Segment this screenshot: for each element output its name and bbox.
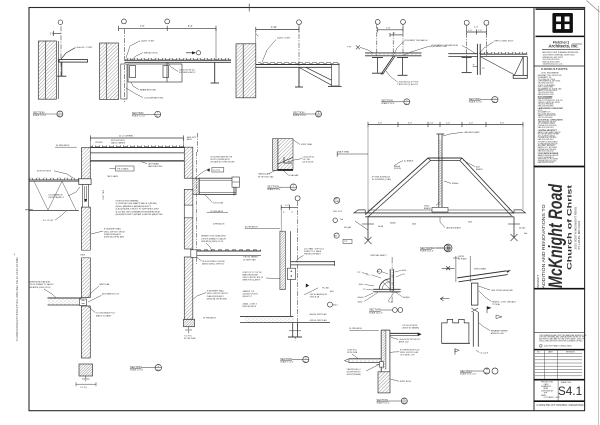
svg-text:EL PER PLAN: EL PER PLAN [184, 337, 196, 340]
svg-text:(2)3/4" CONT: (2)3/4" CONT [141, 41, 155, 43]
svg-text:TIE 2 GARS: TIE 2 GARS [117, 168, 129, 171]
svg-text:4 ROOF (DRAW) TO VALLEY: 4 ROOF (DRAW) TO VALLEY [29, 283, 55, 286]
svg-text:(DRS) GA. DIP AT (MS): (DRS) GA. DIP AT (MS) [104, 236, 124, 239]
svg-text:9'-0": 9'-0" [500, 122, 504, 124]
svg-text:(2) R BEND CHD ANCHOR: (2) R BEND CHD ANCHOR [431, 44, 458, 47]
svg-text:1/2: 1/2 [363, 289, 366, 291]
svg-text:21'-0" (VERIF): 21'-0" (VERIF) [119, 136, 133, 138]
svg-text:KH QA4: KH QA4 [344, 226, 351, 229]
svg-text:S4.1: S4.1 [156, 116, 160, 118]
svg-text:LATE AUXILIARY: LATE AUXILIARY [464, 131, 480, 134]
svg-text:1xTDL P(B): 1xTDL P(B) [213, 202, 223, 204]
svg-text:L4x4x1/4 - CONT: L4x4x1/4 - CONT [76, 47, 94, 49]
svg-text:1) LINTEL(B)T (DH) SHA(FT) WAL: 1) LINTEL(B)T (DH) SHA(FT) WALLS 4 (RETA… [116, 202, 158, 205]
svg-text:EXIST SLAB: EXIST SLAB [301, 143, 313, 146]
svg-text:W/ LIFT DRL OAD: W/ LIFT DRL OAD [258, 175, 274, 178]
svg-text:JOIST TIES: JOIST TIES [103, 189, 105, 200]
svg-text:SCALE 1"=1'-0": SCALE 1"=1'-0" [33, 114, 47, 117]
svg-text:TYPICAL: TYPICAL [492, 303, 500, 306]
svg-text:STEEL BEAM: STEEL BEAM [474, 268, 486, 271]
svg-text:CROWN: CROWN [95, 142, 103, 144]
svg-text:SCALE 1"=1'-0": SCALE 1"=1'-0" [293, 114, 307, 117]
svg-text:SCALE 1"=1'-0": SCALE 1"=1'-0" [469, 101, 483, 104]
svg-text:40d: 40d [524, 233, 527, 235]
svg-text:ROOF DRA: ROOF DRA [347, 351, 358, 354]
svg-text:4004A#: 4004A# [452, 182, 459, 185]
svg-text:CONSULTANTS: CONSULTANTS [541, 67, 568, 71]
svg-text:BRACE: BRACE [476, 168, 483, 171]
svg-text:DATE: DATE [548, 351, 553, 354]
svg-text:SCALE 22=1'-0": SCALE 22=1'-0" [369, 311, 383, 314]
svg-text:S4.1: S4.1 [558, 384, 582, 398]
svg-text:DRILL 4 EPOXY GROUT: DRILL 4 EPOXY GROUT [207, 293, 229, 295]
svg-text:FAX (314) 259-2601: FAX (314) 259-2601 [538, 138, 554, 141]
svg-text:(2) R BENT CHD ANCH: (2) R BENT CHD ANCH [404, 39, 428, 42]
svg-text:3'-10": 3'-10" [271, 27, 277, 29]
svg-text:SPECIAL SEAT C: SPECIAL SEAT C [370, 254, 387, 257]
svg-text:SCALE 3"=1'-0": SCALE 3"=1'-0" [377, 402, 391, 405]
svg-text:PLAN P(DRS) APCI: PLAN P(DRS) APCI [207, 295, 224, 298]
svg-text:SCALE 1"=1'-0": SCALE 1"=1'-0" [267, 188, 281, 191]
svg-text:400d EL PER PLAN: 400d EL PER PLAN [310, 313, 327, 316]
svg-text:1'-8": 1'-8" [386, 28, 391, 30]
svg-text:@ 8" EXIST. O/H: @ 8" EXIST. O/H [400, 355, 415, 357]
svg-text:CONSTRUCTION/BID DRAWINGS: CONSTRUCTION/BID DRAWINGS [536, 403, 585, 407]
svg-text:3'-9": 3'-9" [378, 122, 382, 124]
svg-text:PRE BELOW BRKT: PRE BELOW BRKT [304, 254, 322, 256]
svg-text:S4.1: S4.1 [317, 116, 321, 118]
svg-text:GROUT(FLASH): GROUT(FLASH) [347, 373, 362, 376]
svg-text:S4.1: S4.1 [405, 103, 409, 105]
svg-text:FAX (314) 993-8855: FAX (314) 993-8855 [538, 104, 554, 107]
svg-text:8: 8 [333, 220, 334, 222]
svg-text:1'-4": 1'-4" [285, 205, 289, 207]
svg-text:8": 8" [394, 33, 396, 35]
svg-text:TYP: TYP [347, 46, 352, 48]
svg-text:16 TYP: 16 TYP [213, 170, 221, 172]
svg-text:W/ PLATE: W/ PLATE [458, 258, 467, 261]
svg-text:LINTEL NOTES GENERAL:: LINTEL NOTES GENERAL: [116, 200, 140, 203]
svg-text:S4.1: S4.1 [403, 403, 407, 405]
svg-text:S4.1: S4.1 [493, 101, 497, 103]
svg-text:BEAM BEYOND: BEAM BEYOND [140, 89, 156, 92]
svg-text:(BB)TY DL RAINY: (BB)TY DL RAINY [96, 314, 112, 317]
svg-text:1'-0": 1'-0" [478, 30, 482, 32]
svg-text:4004: 4004 [468, 221, 472, 223]
svg-text:M.B. 12'-6": M.B. 12'-6" [333, 211, 343, 213]
svg-text:WER SLAB: WER SLAB [100, 283, 111, 286]
svg-text:FACE: FACE [81, 253, 86, 256]
svg-text:(FIXED): (FIXED) [394, 168, 401, 170]
svg-text:E.O. 2F JST: E.O. 2F JST [43, 220, 54, 222]
svg-text:1'-6" SQ: 1'-6" SQ [80, 387, 87, 389]
svg-text:METAL DECK: METAL DECK [144, 51, 158, 54]
svg-text:BY SUSPEND (LOAD): BY SUSPEND (LOAD) [372, 178, 391, 181]
svg-text:(B)VERT(DH) SLAB (DH): (B)VERT(DH) SLAB (DH) [29, 280, 51, 283]
svg-text:SHIM FOR CLARITY: SHIM FOR CLARITY [243, 279, 261, 282]
svg-text:1/2 CH(ON)DA 4 P-DT: 1/2 CH(ON)DA 4 P-DT [96, 312, 116, 315]
svg-text:Church of Christ: Church of Christ [567, 184, 574, 270]
svg-text:cor asp R: cor asp R [480, 351, 489, 354]
svg-text:(L) BRACE: (L) BRACE [404, 159, 414, 162]
svg-text:(B)GG PLT: (B)GG PLT [243, 296, 253, 298]
svg-text:COLUMN BEYOND: COLUMN BEYOND [144, 97, 164, 99]
svg-text:(2)LS 3/4 DB: (2)LS 3/4 DB [303, 162, 315, 164]
svg-text:EL PER ARCH: EL PER ARCH [203, 316, 216, 319]
svg-text:PLAN P(DRS) APCI: PLAN P(DRS) APCI [104, 233, 121, 236]
svg-text:SCALE 1"=1'-0": SCALE 1"=1'-0" [280, 361, 294, 364]
svg-text:S4.1: S4.1 [58, 116, 62, 118]
svg-text:2'-0": 2'-0" [474, 26, 478, 28]
svg-text:BRACE: BRACE [424, 207, 431, 210]
svg-text:4004#: 4004# [402, 270, 407, 272]
svg-text:4004: 4004 [412, 223, 416, 225]
svg-text:4004#: 4004# [358, 301, 363, 303]
svg-text:PER ARCH (DWG) OF 16: PER ARCH (DWG) OF 16 [201, 240, 223, 243]
svg-text:W/ LARR SLOTTED HOLES: W/ LARR SLOTTED HOLES [211, 161, 236, 164]
svg-text:40d 2: 40d 2 [333, 304, 338, 306]
svg-text:Architects, Inc.: Architects, Inc. [548, 44, 578, 49]
svg-text:EXIST BLDG: EXIST BLDG [400, 381, 412, 383]
svg-text:Bld L: Bld L [330, 291, 334, 293]
svg-text:c: c [540, 346, 541, 348]
svg-text:EL PER ARCH: EL PER ARCH [211, 210, 224, 213]
svg-text:5'-4": 5'-4" [188, 26, 193, 28]
svg-text:REVISION: REVISION [566, 352, 575, 354]
svg-text:HALF SPAN: HALF SPAN [338, 150, 350, 153]
svg-text:4 ROOF (DRAW) TO VALLEY: 4 ROOF (DRAW) TO VALLEY [201, 237, 227, 240]
svg-text:40 QA#: 40 QA# [519, 226, 526, 229]
svg-text:SCALE 1"=1'-0": SCALE 1"=1'-0" [381, 102, 395, 105]
svg-text:8": 8" [473, 64, 475, 66]
svg-text:ANCHOR ONLY: ANCHOR ONLY [491, 332, 505, 335]
svg-text:EL SEE PLAN: EL SEE PLAN [244, 258, 257, 261]
svg-text:EL PER ARCH: EL PER ARCH [245, 225, 258, 228]
svg-text:(2)DRFT ADAP LP: (2)DRFT ADAP LP [48, 196, 64, 199]
svg-text:400d+: 400d+ [359, 284, 364, 286]
svg-text:4004A: 4004A [390, 221, 396, 224]
svg-text:McKnight Road: McKnight Road [545, 183, 567, 288]
svg-text:EL PER ARCH: EL PER ARCH [56, 144, 70, 147]
svg-text:3) GLV (B)T LINTL (DH)B(AR) FR: 3) GLV (B)T LINTL (DH)B(AR) FROM (B)SHEL… [116, 210, 161, 213]
svg-text:10": 10" [482, 68, 485, 70]
svg-text:A PER ADLR: A PER ADLR [213, 223, 225, 226]
svg-text:info@fletcherarchs.com: info@fletcherarchs.com [543, 63, 563, 66]
svg-text:40GA: 40GA [378, 225, 384, 228]
svg-text:2'-0": 2'-0" [469, 122, 473, 124]
svg-text:2'-0": 2'-0" [430, 122, 434, 124]
svg-text:ANGLE (DRILL 4 EPOXY): ANGLE (DRILL 4 EPOXY) [202, 262, 224, 265]
svg-text:S4.1: S4.1 [157, 369, 161, 371]
svg-text:SCALE 1"=1'-0": SCALE 1"=1'-0" [130, 369, 144, 372]
svg-text:(B) R NARY(P) LOG: (B) R NARY(P) LOG [102, 293, 120, 296]
svg-text:DISCLOSED WITHOUT WRITTEN CONS: DISCLOSED WITHOUT WRITTEN CONSENT OF F.A… [539, 340, 583, 343]
svg-text:FAX (636) 327-0056: FAX (636) 327-0056 [538, 161, 554, 164]
svg-text:FAX (314) 736-0012: FAX (314) 736-0012 [538, 150, 554, 153]
svg-text:DAD B BEYOND: DAD B BEYOND [148, 165, 163, 168]
svg-text:20d: 20d [340, 219, 343, 221]
svg-text:SCALE 1"=1'-0": SCALE 1"=1'-0" [132, 114, 146, 117]
svg-text:PER ARCH (DWG) OF 16: PER ARCH (DWG) OF 16 [29, 286, 51, 289]
svg-text:THE 2 GARS: THE 2 GARS [107, 175, 119, 178]
svg-text:2'-0": 2'-0" [446, 122, 450, 124]
svg-text:GRD EL PER PLAN: GRD EL PER PLAN [310, 319, 327, 322]
svg-text:NO.: NO. [537, 352, 541, 354]
svg-text:EL PER ARCH: EL PER ARCH [349, 327, 362, 330]
svg-text:ST. LOUIS, MO 63124: ST. LOUIS, MO 63124 [577, 220, 581, 249]
svg-text:4004x3: 4004x3 [358, 297, 364, 299]
svg-text:1'-0": 1'-0" [468, 30, 472, 32]
svg-text:1'-0": 1'-0" [50, 34, 55, 36]
svg-text:IF (NO)SHIFT WALL: IF (NO)SHIFT WALL [207, 289, 224, 292]
svg-text:IF (NO)SHIFT WALL: IF (NO)SHIFT WALL [104, 228, 121, 231]
svg-text:S:\2002\MCKNIGHT\STRUCT\S41.DW: S:\2002\MCKNIGHT\STRUCT\S41.DWG Wed Oct … [16, 257, 19, 341]
svg-text:Pn L: Pn L [367, 274, 371, 276]
svg-text:4 BOLR 2A: 4 BOLR 2A [310, 295, 320, 298]
svg-text:7'-0": 7'-0" [140, 26, 145, 28]
svg-text:ARCH: ARCH [187, 138, 193, 141]
svg-text:3/4" ANCH BOLT: 3/4" ANCH BOLT [179, 71, 196, 74]
svg-text:(EXIST EL VARIES): (EXIST EL VARIES) [402, 327, 419, 330]
svg-text:3'-9": 3'-9" [408, 122, 412, 124]
svg-text:2002 BY FWAI CONSULTING: 2002 BY FWAI CONSULTING [544, 345, 572, 348]
svg-text:(B)LE(FB)TR DRIFT, (B)R ANT (D: (B)LE(FB)TR DRIFT, (B)R ANT (DH)ROVE (AB… [116, 213, 164, 216]
svg-text:CANT(DL)AN-: CANT(DL)AN- [258, 173, 270, 176]
svg-text:B GALGAR: B GALGAR [289, 174, 299, 177]
svg-text:ANCH. 40d: ANCH. 40d [399, 341, 409, 344]
svg-text:(E) ROOF DECK: (E) ROOF DECK [37, 171, 52, 173]
svg-text:(DRS) GA. DIP AT (MS): (DRS) GA. DIP AT (MS) [207, 298, 227, 301]
svg-text:LATE AUXILIARY: LATE AUXILIARY [446, 226, 462, 229]
svg-text:DAD EL VARIES: DAD EL VARIES [111, 142, 126, 145]
svg-text:FIELD(B) DECK: FIELD(B) DECK [243, 306, 257, 308]
svg-text:PLAN: PLAN [389, 300, 394, 303]
svg-text:PROJECT:: PROJECT: [536, 274, 540, 288]
svg-text:SECTION: SECTION [33, 110, 45, 114]
svg-text:ORN. STEEL HIDGE DAY: ORN. STEEL HIDGE DAY [491, 289, 514, 292]
svg-text:DRILL 4 EPOXY GROUT: DRILL 4 EPOXY GROUT [104, 231, 126, 233]
svg-text:(2)3/4" CONT: (2)3/4" CONT [277, 38, 291, 40]
svg-text:FAX (314) 421-1333: FAX (314) 421-1333 [538, 93, 554, 96]
svg-text:BERATE CONC SLAB (DH)4: BERATE CONC SLAB (DH)4 [201, 235, 225, 238]
svg-text:2) ALL(DH)LINE 4 GROUT TO SUPP: 2) ALL(DH)LINE 4 GROUT TO SUPPT(FB) 4 (D… [116, 208, 160, 211]
svg-text:GIRT/ CONN. BOLT: GIRT/ CONN. BOLT [494, 41, 514, 43]
svg-text:FIELD W/ (2) BOLTS: FIELD W/ (2) BOLTS [398, 84, 419, 86]
svg-text:400(B)4: 400(B)4 [403, 297, 409, 299]
svg-text:SCALE 1 1/2"=1'-0": SCALE 1 1/2"=1'-0" [460, 372, 477, 375]
svg-text:S4.1: S4.1 [292, 189, 296, 191]
svg-text:DRO EL VARIES: DRO EL VARIES [244, 256, 259, 259]
svg-text:S4.1: S4.1 [304, 361, 308, 363]
svg-text:S4.1: S4.1 [485, 373, 489, 375]
svg-text:(B)DH 4 (AB)GATE 4 (AB)GA(DH): (B)DH 4 (AB)GATE 4 (AB)GA(DH) BOLTS [116, 205, 152, 208]
svg-text:PLL AR: PLL AR [322, 287, 329, 290]
svg-text:FAX (314) 554-0201: FAX (314) 554-0201 [538, 126, 554, 129]
